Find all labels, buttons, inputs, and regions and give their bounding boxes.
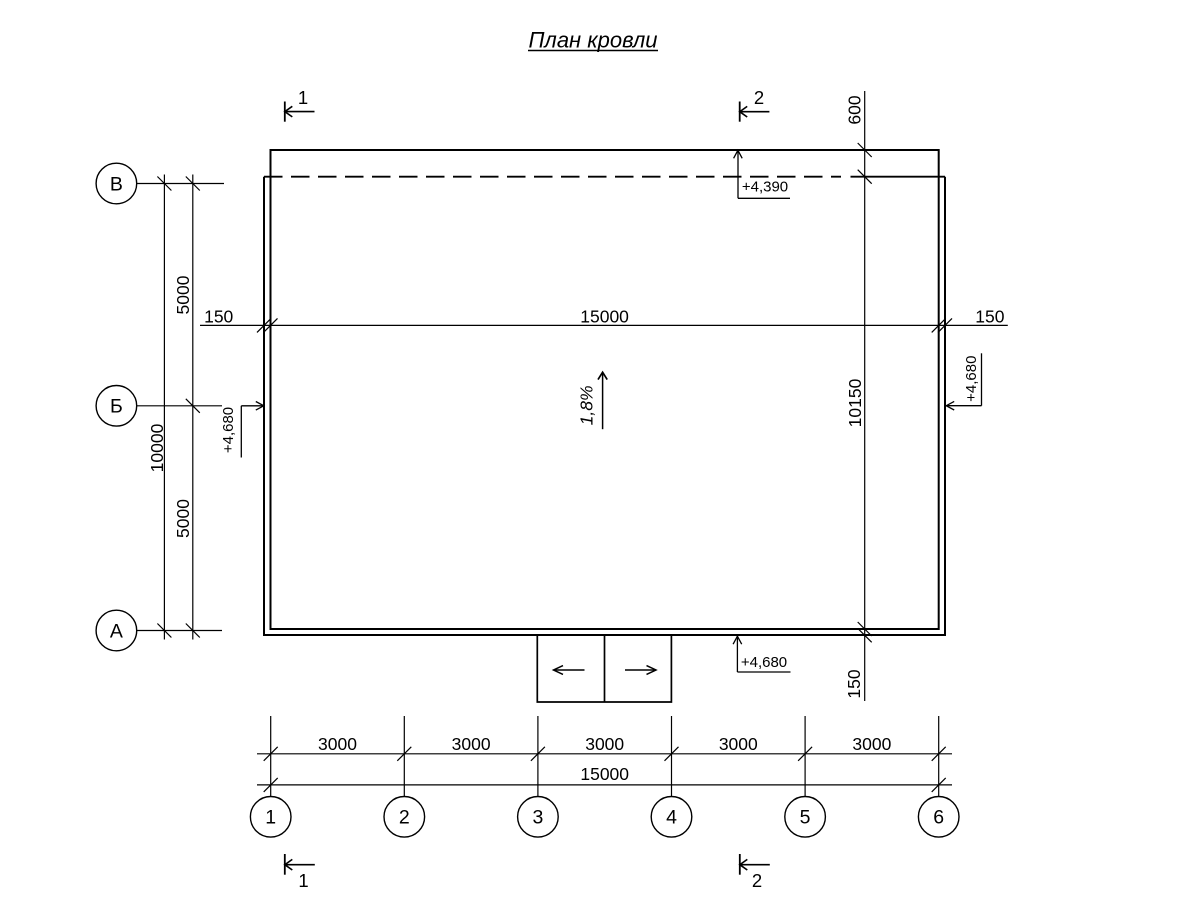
svg-text:3000: 3000 <box>852 734 891 754</box>
svg-text:3000: 3000 <box>318 734 357 754</box>
svg-text:600: 600 <box>845 95 865 124</box>
svg-text:План кровли: План кровли <box>528 28 657 53</box>
svg-text:2: 2 <box>752 870 762 891</box>
svg-text:3000: 3000 <box>719 734 758 754</box>
svg-text:150: 150 <box>975 307 1004 327</box>
svg-text:Б: Б <box>110 396 123 418</box>
svg-text:5000: 5000 <box>173 275 193 314</box>
svg-text:3: 3 <box>532 807 543 829</box>
svg-text:1: 1 <box>298 870 308 891</box>
svg-text:10000: 10000 <box>147 423 167 472</box>
svg-text:5: 5 <box>800 807 811 829</box>
svg-text:150: 150 <box>844 669 864 698</box>
svg-text:4: 4 <box>666 807 677 829</box>
svg-text:+4,390: +4,390 <box>742 179 788 196</box>
svg-text:+4,680: +4,680 <box>963 356 980 402</box>
svg-text:1,8%: 1,8% <box>577 385 597 425</box>
svg-text:2: 2 <box>399 807 410 829</box>
svg-text:1: 1 <box>265 807 276 829</box>
svg-text:5000: 5000 <box>173 499 193 538</box>
svg-text:150: 150 <box>204 307 233 327</box>
svg-text:15000: 15000 <box>580 764 629 784</box>
svg-text:В: В <box>110 173 123 195</box>
svg-text:3000: 3000 <box>452 734 491 754</box>
svg-text:А: А <box>110 620 123 642</box>
svg-text:6: 6 <box>933 807 944 829</box>
svg-text:10150: 10150 <box>845 378 865 427</box>
svg-text:15000: 15000 <box>580 307 629 327</box>
svg-text:1: 1 <box>298 87 308 108</box>
svg-text:3000: 3000 <box>585 734 624 754</box>
svg-text:+4,680: +4,680 <box>220 407 237 453</box>
svg-text:2: 2 <box>754 87 764 108</box>
svg-text:+4,680: +4,680 <box>741 654 787 671</box>
